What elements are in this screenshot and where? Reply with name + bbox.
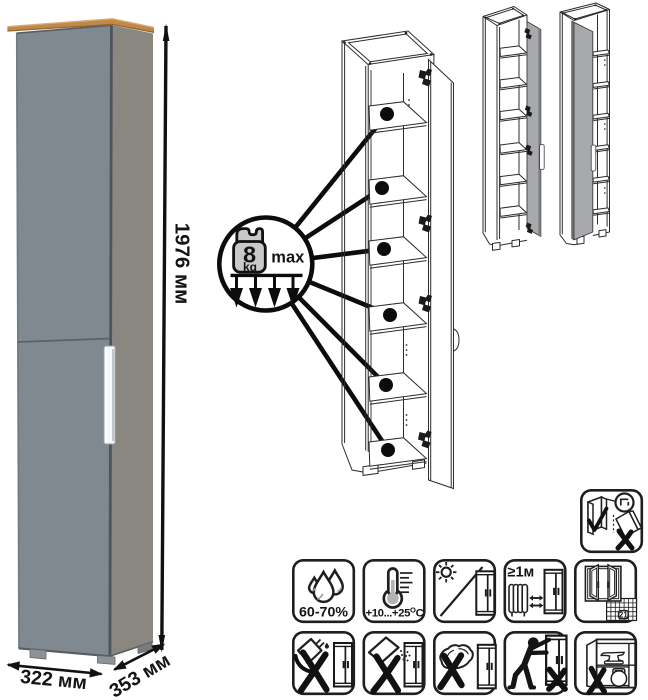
svg-text:kg: kg bbox=[243, 260, 257, 274]
svg-text:max: max bbox=[271, 249, 305, 267]
svg-text:21: 21 bbox=[619, 610, 628, 619]
svg-text:≥1м: ≥1м bbox=[508, 565, 535, 581]
svg-text:60-70%: 60-70% bbox=[299, 605, 348, 621]
svg-text:1976 мм: 1976 мм bbox=[171, 223, 194, 305]
svg-text:+10...+25OC: +10...+25OC bbox=[366, 606, 424, 620]
svg-text:322 мм: 322 мм bbox=[19, 666, 88, 694]
